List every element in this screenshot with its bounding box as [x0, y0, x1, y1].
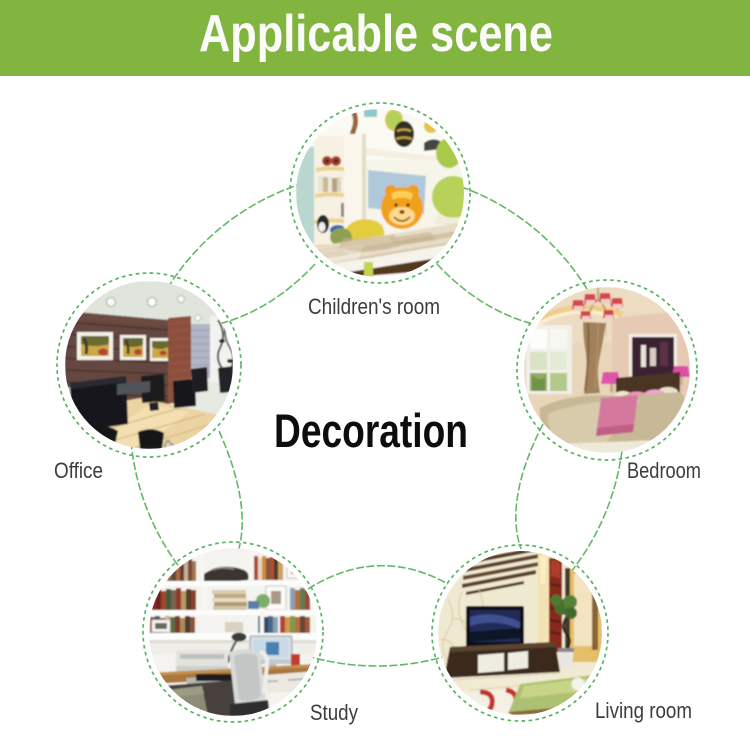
svg-text:Applicable scene: Applicable scene [199, 5, 553, 63]
svg-text:Bedroom: Bedroom [627, 458, 701, 483]
svg-text:Study: Study [310, 700, 358, 725]
svg-text:Children's room: Children's room [308, 294, 440, 319]
svg-text:Decoration: Decoration [274, 404, 468, 457]
svg-text:Office: Office [54, 458, 103, 483]
svg-text:Living room: Living room [595, 698, 692, 723]
